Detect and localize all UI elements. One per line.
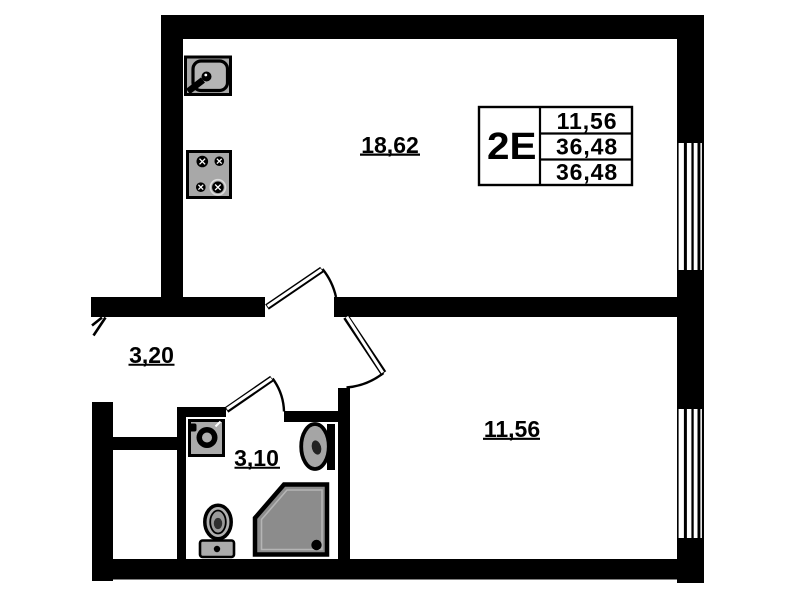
svg-text:36,48: 36,48: [556, 159, 618, 185]
svg-text:36,48: 36,48: [556, 134, 618, 160]
svg-text:2E: 2E: [487, 126, 537, 168]
svg-text:11,56: 11,56: [557, 108, 618, 134]
